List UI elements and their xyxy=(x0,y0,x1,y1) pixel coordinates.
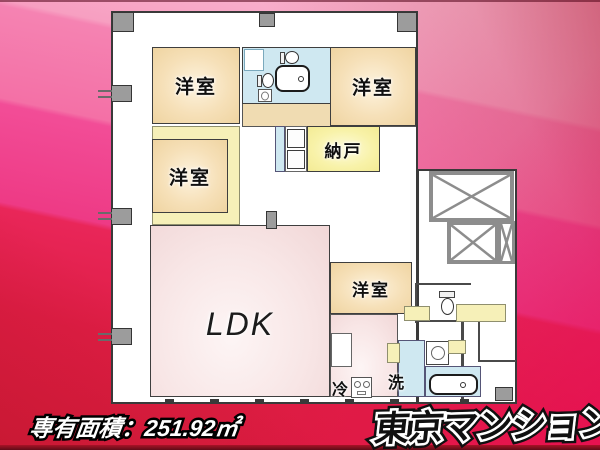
logo-fill: 東京マンション xyxy=(372,404,600,449)
label-laundry: 洗 xyxy=(388,369,404,393)
top-border-line xyxy=(0,0,600,2)
washbasin-icon xyxy=(258,89,272,102)
closet-strip xyxy=(387,343,400,363)
room-label: 洋室 xyxy=(175,72,217,99)
wall-segment xyxy=(415,283,471,285)
room-storage: 納戸 xyxy=(307,126,380,172)
balcony-divider xyxy=(98,212,112,220)
wall-tick xyxy=(255,399,264,404)
pillar-icon xyxy=(111,328,132,345)
wall-tick xyxy=(165,399,174,404)
room-label: 納戸 xyxy=(325,137,363,162)
pillar-icon xyxy=(112,12,134,32)
washing-machine-icon xyxy=(426,341,449,365)
elevator-shaft-icon xyxy=(447,221,499,264)
label-refrigerator: 冷 xyxy=(332,376,348,400)
pillar-icon xyxy=(111,85,132,102)
bathtub-icon xyxy=(429,374,478,395)
stove-icon xyxy=(351,377,372,398)
stove-burner xyxy=(354,381,361,388)
bathtub-drain xyxy=(460,382,466,388)
elevator-x-icon xyxy=(433,175,510,218)
bathtub-drain xyxy=(298,76,304,82)
wall-tick xyxy=(345,399,354,404)
pillar-icon xyxy=(111,208,132,225)
toilet-icon xyxy=(262,73,274,88)
area-text: 専有面積：251.92㎡ 専有面積：251.92㎡ xyxy=(28,409,241,443)
elevator-shaft-icon xyxy=(429,171,514,222)
balcony-divider xyxy=(98,90,112,98)
area-text-fill: 専有面積：251.92㎡ xyxy=(28,415,240,441)
pillar-icon xyxy=(397,12,417,32)
room-bedroom-3: 洋室 xyxy=(330,47,416,126)
logo-text: 東京マンション 東京マンション 東京マンション xyxy=(372,395,600,450)
elevator-x-icon xyxy=(451,225,495,260)
pillar-icon xyxy=(266,211,277,229)
pillar-icon xyxy=(259,13,275,27)
washer-drum xyxy=(431,346,445,360)
stove-grill xyxy=(357,391,366,395)
closet-door-icon xyxy=(287,129,305,148)
wall-segment xyxy=(478,321,480,362)
room-label: LDK xyxy=(197,306,283,343)
elevator-x-icon xyxy=(501,224,512,261)
wall-segment xyxy=(478,360,516,362)
room-label: 洋室 xyxy=(169,163,211,190)
wall-tick xyxy=(300,399,309,404)
bath-sliver xyxy=(275,126,285,172)
closet-strip xyxy=(404,306,430,321)
room-label: 洋室 xyxy=(352,276,390,301)
room-bedroom-2: 洋室 xyxy=(152,139,228,213)
room-label: 洋室 xyxy=(352,73,394,100)
shower-room xyxy=(244,49,264,71)
toilet-icon xyxy=(439,291,455,298)
room-bedroom-4: 洋室 xyxy=(330,262,412,314)
toilet-icon xyxy=(285,51,299,64)
toilet-icon xyxy=(441,298,454,315)
wall-tick xyxy=(210,399,219,404)
kitchen-island xyxy=(331,333,352,367)
closet-strip xyxy=(456,304,506,322)
room-bedroom-1: 洋室 xyxy=(152,47,240,124)
closet-strip xyxy=(448,340,466,354)
flyer-canvas: 洋室 洋室 洋室 納戸 LDK xyxy=(0,0,600,450)
bathtub-icon xyxy=(275,65,310,92)
elevator-shaft-icon xyxy=(498,221,515,264)
stove-burner xyxy=(363,381,370,388)
balcony-divider xyxy=(98,333,112,341)
closet-door-icon xyxy=(287,150,305,169)
washbasin-bowl xyxy=(261,91,269,100)
